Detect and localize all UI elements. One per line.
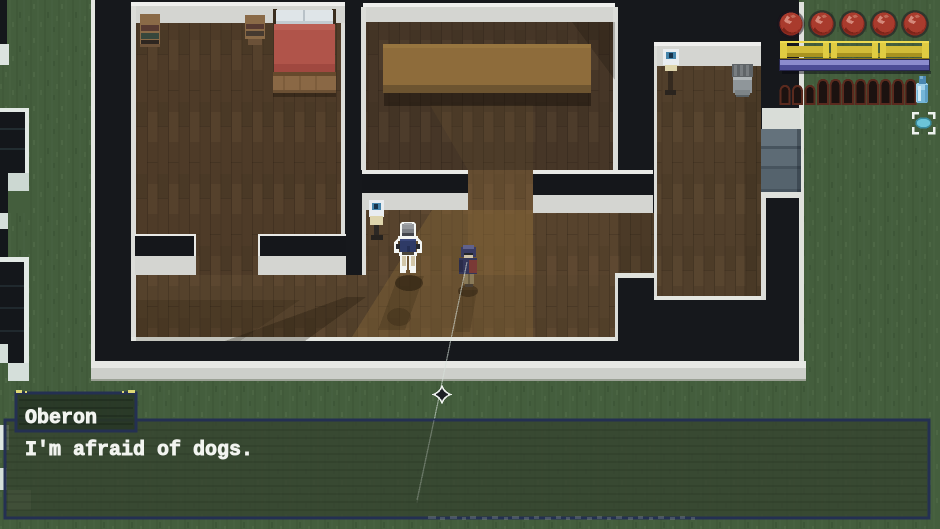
svg-text:Oberon: Oberon	[25, 407, 97, 430]
svg-text:I'm afraid of dogs.: I'm afraid of dogs.	[25, 439, 253, 462]
